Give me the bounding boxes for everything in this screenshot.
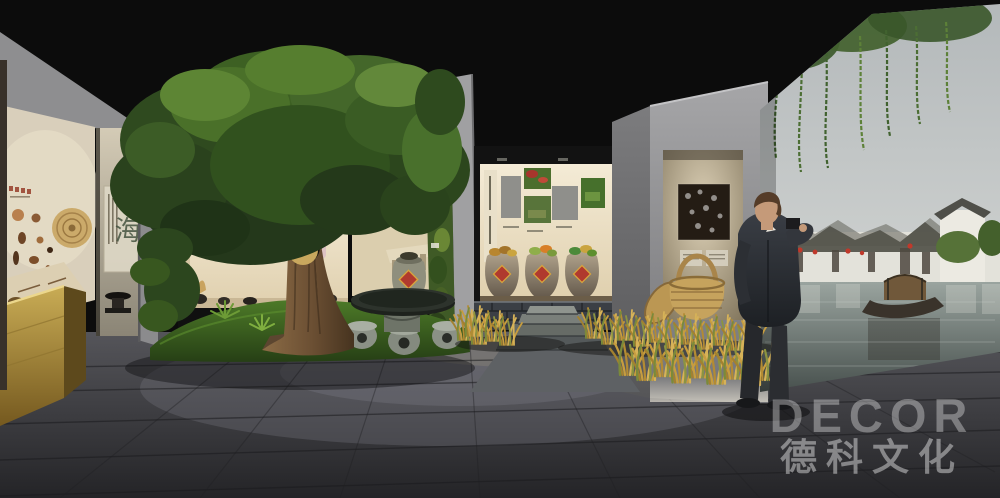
woven-basket — [52, 208, 92, 248]
framed-photo — [678, 184, 730, 240]
exhibition-render: 海 — [0, 0, 1000, 498]
watermark-logo: DECOR — [770, 389, 975, 442]
stone-table-set — [347, 288, 462, 355]
watermark: DECOR 德科文化 — [770, 389, 975, 479]
center-display-window — [474, 146, 618, 330]
watermark-company: 德科文化 — [780, 436, 964, 479]
left-edge — [0, 60, 7, 390]
produce-jars — [485, 245, 599, 296]
scene-svg: 海 — [0, 0, 1000, 498]
